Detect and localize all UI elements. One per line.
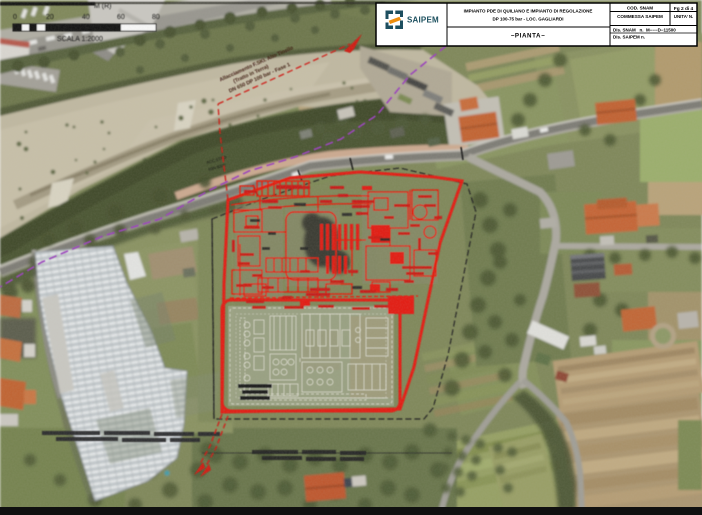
svg-text:SAIPEM: SAIPEM bbox=[407, 16, 439, 25]
svg-text:COD. SNAM: COD. SNAM bbox=[627, 6, 653, 11]
svg-text:UNITA’ N.: UNITA’ N. bbox=[674, 14, 693, 19]
svg-text:−PIANTA−: −PIANTA− bbox=[511, 33, 546, 40]
svg-text:Dis. SNAM n. M−−−D−11500: Dis. SNAM n. M−−−D−11500 bbox=[613, 28, 676, 33]
svg-text:COMMESSA SAIPEM: COMMESSA SAIPEM bbox=[617, 14, 663, 19]
svg-text:IMPIANTO PDE DI QUILIANO E IMP: IMPIANTO PDE DI QUILIANO E IMPIANTO DI R… bbox=[464, 9, 593, 14]
svg-text:Dis. SAIPEM n.: Dis. SAIPEM n. bbox=[613, 35, 645, 40]
svg-text:Fg 2 di 4: Fg 2 di 4 bbox=[674, 6, 694, 12]
svg-text:DP 100-75 bar - LOC. GAGLIAR: DP 100-75 bar - LOC. GAGLIARDI bbox=[493, 17, 564, 22]
